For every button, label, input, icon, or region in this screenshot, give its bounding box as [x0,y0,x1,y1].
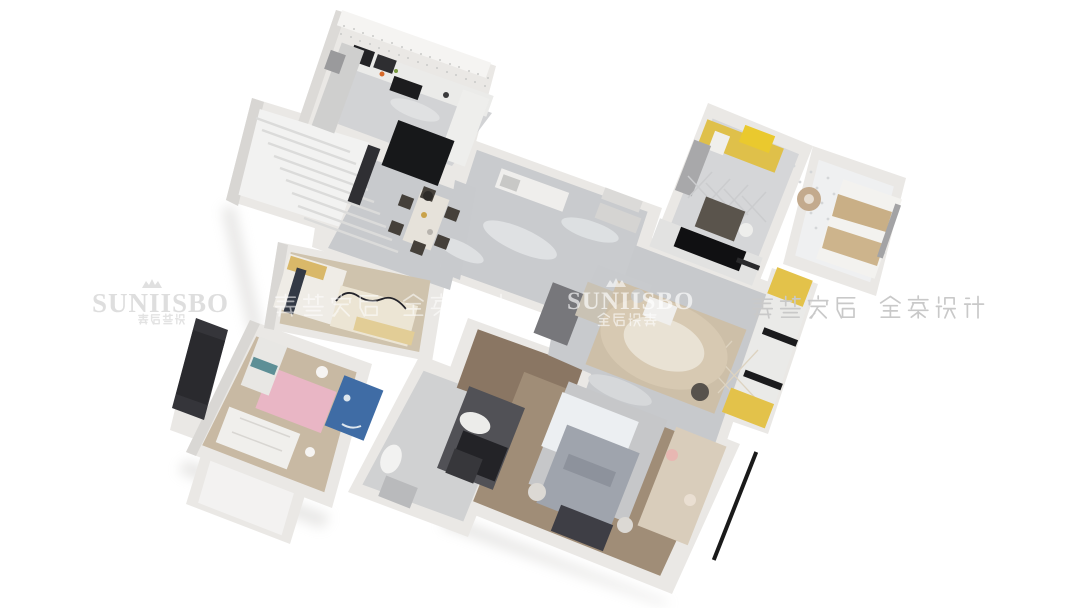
svg-text:SUNIISBO: SUNIISBO [92,288,229,318]
svg-text:SUNIISBO: SUNIISBO [567,288,695,315]
